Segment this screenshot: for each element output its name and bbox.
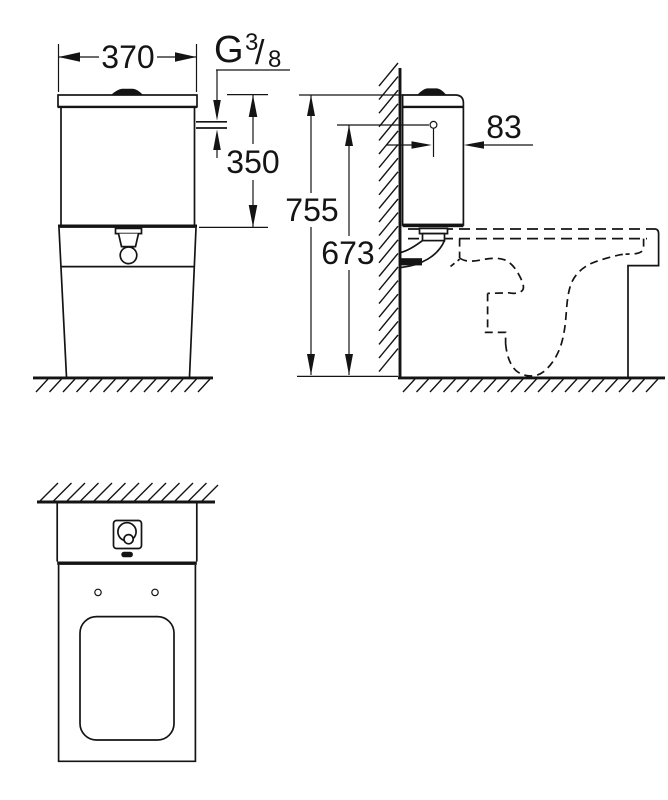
cistern-bottom-edge-side (403, 224, 464, 228)
inlet-point (430, 121, 437, 128)
flush-button-bump-side (418, 88, 447, 94)
bowl-rear-profile (628, 229, 659, 377)
flush-channel-connector (451, 259, 460, 266)
bowl-opening (80, 617, 174, 740)
flush-button-bump (111, 89, 143, 95)
cistern-front-edge (57, 562, 197, 565)
bowl-top-outline (59, 565, 196, 761)
side-view: 83 755 673 (285, 63, 665, 392)
leader-arrow-up (213, 130, 221, 151)
thread-denominator: 8 (268, 46, 281, 73)
seat-hole-left (95, 589, 101, 595)
wall-pipe-section (400, 258, 422, 265)
arrow-up (345, 125, 353, 146)
flush-elbow (400, 228, 448, 267)
lid-latch-mark (121, 552, 133, 557)
floor-hatch-side (403, 379, 658, 392)
floor-hatch (36, 379, 210, 392)
cistern-bottom-edge (58, 225, 197, 228)
cistern-body (61, 107, 195, 225)
button-small-circle (124, 535, 133, 544)
valve-cap (120, 247, 137, 264)
trap-left-wall (486, 293, 506, 343)
leader-arrow-down (213, 100, 221, 121)
trap-u-bend (506, 254, 626, 376)
arrow-left (59, 52, 81, 62)
arrow-down (345, 354, 353, 375)
dim-width-label: 370 (101, 39, 154, 75)
dim-total-height-label: 755 (285, 192, 338, 228)
elbow-collar (423, 234, 445, 241)
flush-channel (460, 258, 524, 293)
thread-letter: G (214, 29, 244, 71)
flush-valve-fitting (116, 228, 142, 263)
arrow-up (249, 95, 258, 117)
technical-drawing: 370 G 3 / 8 (0, 0, 668, 800)
thread-slash: / (255, 34, 265, 72)
arrow-left (464, 141, 484, 149)
cistern-lid (58, 95, 197, 107)
arrow-up (307, 95, 315, 116)
dim-inlet-height-label: 673 (321, 235, 374, 271)
inlet-pipe-stub (196, 122, 227, 128)
wall-hatch (379, 63, 398, 372)
top-view (37, 483, 218, 761)
arrow-down (249, 205, 258, 227)
dimension-cistern-height: 350 (199, 95, 280, 228)
rim-inner-rear (626, 239, 644, 255)
seat-hole-right (152, 589, 158, 595)
cistern-side-outline (403, 95, 464, 225)
flush-button-top (114, 521, 142, 558)
arrow-down (307, 354, 315, 375)
bowl-hidden-outline (408, 229, 659, 377)
wall-hatch-top-view (40, 483, 218, 501)
arrow-right (175, 52, 197, 62)
dimension-width: 370 (59, 39, 197, 92)
thread-callout: G 3 / 8 (213, 29, 290, 158)
dim-cistern-height-label: 350 (226, 144, 279, 180)
front-view: 370 G 3 / 8 (33, 29, 290, 392)
dim-inlet-offset-label: 83 (486, 109, 522, 145)
valve-taper (119, 234, 139, 247)
valve-flange (116, 228, 142, 233)
